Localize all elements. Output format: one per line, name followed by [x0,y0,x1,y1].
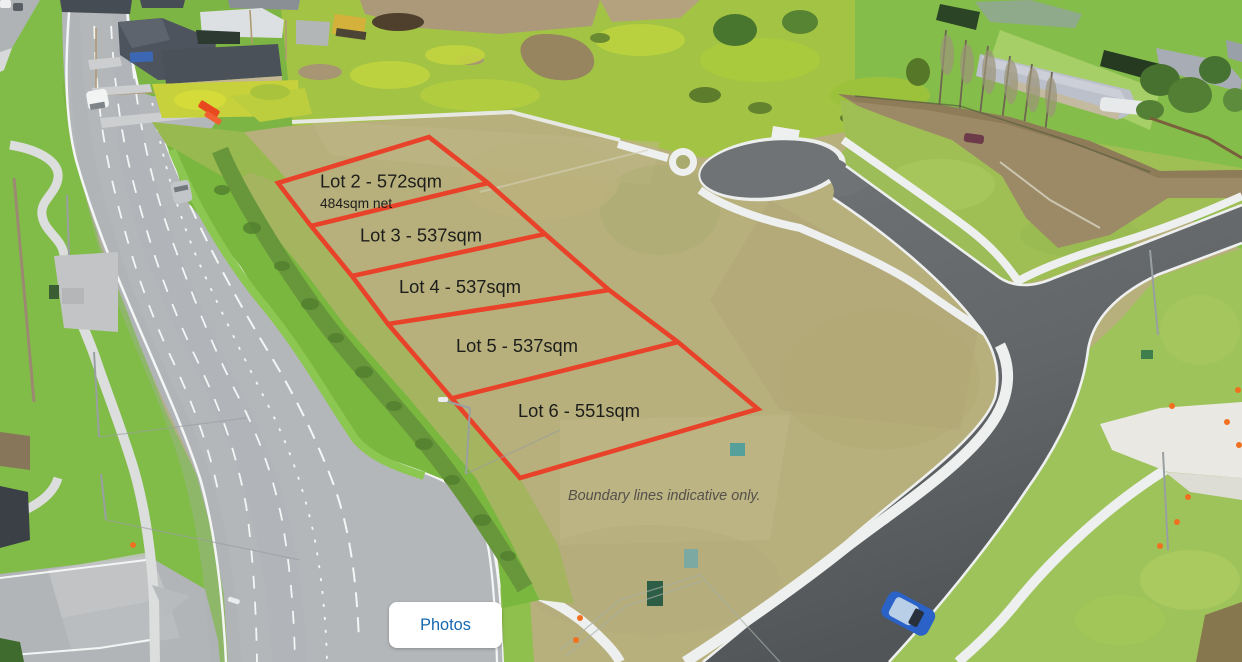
svg-text:Lot 2 - 572sqm: Lot 2 - 572sqm [320,171,442,192]
svg-text:484sqm net: 484sqm net [320,196,392,211]
svg-text:Boundary lines indicative only: Boundary lines indicative only. [568,488,761,504]
svg-text:Lot 6 - 551sqm: Lot 6 - 551sqm [518,400,640,421]
svg-text:Lot 3 - 537sqm: Lot 3 - 537sqm [360,225,482,246]
svg-text:Lot 4 - 537sqm: Lot 4 - 537sqm [399,276,521,297]
svg-text:Lot 5 - 537sqm: Lot 5 - 537sqm [456,335,578,356]
